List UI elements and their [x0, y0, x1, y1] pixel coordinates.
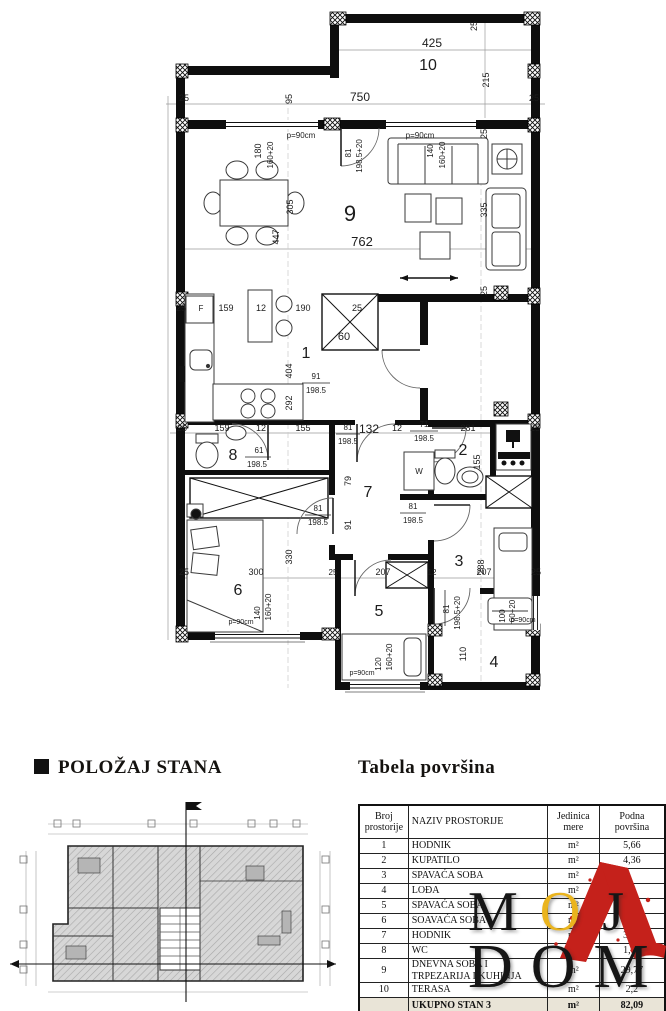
row-num: 6 [359, 914, 408, 929]
dim-label: 198.5 [247, 460, 268, 469]
room-number-1: 1 [302, 345, 311, 362]
header-jedinica: Jedinica mere [547, 805, 599, 839]
dim-label: 12 [428, 568, 437, 577]
dim-label: 25 [179, 93, 189, 103]
dim-label: 750 [350, 90, 370, 104]
total-label: UKUPNO STAN 3 [408, 998, 547, 1011]
dim-label: 404 [284, 363, 294, 378]
total-num [359, 998, 408, 1011]
table-row: 5SPAVAĆA SOBAm²6,01 [359, 899, 665, 914]
dim-label: 12 [392, 423, 402, 433]
row-name: HODNIK [408, 839, 547, 854]
dim-label: p=90cm [228, 619, 253, 626]
dim-label: 160+20 [266, 141, 275, 168]
position-title: POLOŽAJ STANA [34, 757, 222, 779]
dim-label: p=90cm [406, 131, 435, 140]
room-number-7: 7 [364, 484, 373, 501]
dim-label: 25 [179, 567, 189, 577]
dim-label: 25 [479, 286, 489, 296]
table-row: 2KUPATILOm²4,36 [359, 854, 665, 869]
dim-label: 330 [284, 549, 294, 564]
row-name: SPAVAĆA SOBA [408, 869, 547, 884]
dim-label: 190 [295, 303, 310, 313]
row-name: KUPATILO [408, 854, 547, 869]
row-area: 9,89 [599, 914, 665, 929]
black-square-bullet [34, 759, 49, 774]
dim-label: 281 [460, 423, 475, 433]
row-unit: m² [547, 929, 599, 944]
room-number-5: 5 [375, 603, 384, 620]
dim-label: 762 [351, 234, 373, 249]
dim-label: 91 [343, 520, 353, 530]
dim-label: 155 [472, 454, 482, 469]
row-name: HODNIK [408, 929, 547, 944]
row-unit: m² [547, 884, 599, 899]
dim-label: 120 [374, 657, 383, 671]
table-header-row: Broj prostorije NAZIV PROSTORIJE Jedinic… [359, 805, 665, 839]
dim-label: 25 [469, 21, 479, 31]
table-row: 4LOĐAm²2, [359, 884, 665, 899]
dim-label: 198.5 [403, 516, 424, 525]
dim-label: 110 [458, 647, 468, 661]
row-name: LOĐA [408, 884, 547, 899]
table-row: 7HODNIKm²3,59 [359, 929, 665, 944]
row-area: 2, [599, 884, 665, 899]
row-area: 3,59 [599, 929, 665, 944]
room-number-2: 2 [459, 442, 468, 459]
dim-label: 12 [256, 423, 266, 433]
dim-label: 81 [409, 502, 418, 511]
dim-label: 292 [284, 395, 294, 410]
dim-label: 447 [271, 229, 281, 244]
dim-label: 198.5+20 [355, 139, 364, 173]
table-row: 1HODNIKm²5,66 [359, 839, 665, 854]
dim-label: 159 [218, 303, 233, 313]
row-num: 5 [359, 899, 408, 914]
row-unit: m² [547, 983, 599, 998]
header-broj: Broj prostorije [359, 805, 408, 839]
row-num: 7 [359, 929, 408, 944]
dim-label: 71 [420, 420, 429, 429]
dim-label: 180 [253, 143, 263, 158]
dim-label: 25 [479, 129, 489, 139]
dim-label: 155 [295, 423, 310, 433]
row-area: 2,2 [599, 983, 665, 998]
dim-label: 100 [498, 609, 507, 623]
dim-label: 95 [284, 94, 294, 104]
row-num: 3 [359, 869, 408, 884]
dim-label: 198.5 [414, 434, 435, 443]
washer-letter: W [415, 467, 423, 476]
row-num: 9 [359, 959, 408, 983]
dim-label: p=90cm [287, 131, 316, 140]
table-title: Tabela površina [358, 757, 495, 779]
row-unit: m² [547, 854, 599, 869]
total-value: 82,09 [599, 998, 665, 1011]
row-unit: m² [547, 869, 599, 884]
row-unit: m² [547, 944, 599, 959]
room-number-4: 4 [490, 654, 499, 671]
row-area [599, 869, 665, 884]
dim-label: 25 [531, 567, 541, 577]
dim-label: 215 [481, 72, 491, 87]
table-total-row: UKUPNO STAN 3 m² 82,09 [359, 998, 665, 1011]
row-unit: m² [547, 839, 599, 854]
dim-label: 140 [253, 606, 262, 620]
dim-label: 198.5 [306, 386, 327, 395]
row-name: SOAVAĆA SOBA [408, 914, 547, 929]
total-unit: m² [547, 998, 599, 1011]
dim-label: 91 [312, 372, 321, 381]
dim-label: 25 [177, 423, 187, 433]
row-area: 4,36 [599, 854, 665, 869]
dim-label: 25 [529, 93, 539, 103]
dim-label: 198.5+20 [453, 596, 462, 630]
dim-label: p=90cm [510, 617, 535, 624]
row-num: 2 [359, 854, 408, 869]
dim-label: 140 [426, 144, 435, 158]
dim-label: 160+20 [438, 141, 447, 168]
dim-label: 25 [176, 303, 186, 313]
dim-label: 198.5 [308, 518, 329, 527]
dim-label: 335 [479, 202, 489, 217]
dim-label: 159 [214, 423, 229, 433]
dim-label: 207 [375, 567, 390, 577]
fridge-letter: F [199, 304, 204, 313]
row-area: 29,77 [599, 959, 665, 983]
furniture-desk [496, 424, 531, 470]
row-num: 10 [359, 983, 408, 998]
room-number-9: 9 [344, 201, 356, 226]
row-unit: m² [547, 914, 599, 929]
row-unit: m² [547, 899, 599, 914]
dim-label: 132 [359, 422, 379, 436]
row-area: 1,74 [599, 944, 665, 959]
table-row: 10TERASAm²2,2 [359, 983, 665, 998]
dim-label: 79 [343, 476, 353, 486]
area-table: Broj prostorije NAZIV PROSTORIJE Jedinic… [358, 804, 666, 1011]
room-number-6: 6 [234, 582, 243, 599]
dim-label: 305 [285, 199, 295, 214]
row-area: 5,66 [599, 839, 665, 854]
dim-label: 81 [344, 148, 353, 157]
room-number-10: 10 [419, 57, 437, 74]
row-name: SPAVAĆA SOBA [408, 899, 547, 914]
dim-label: 60 [338, 331, 350, 343]
dim-label: 160+20 [385, 643, 394, 670]
table-row: 6SOAVAĆA SOBAm²9,89 [359, 914, 665, 929]
header-naziv: NAZIV PROSTORIJE [408, 805, 547, 839]
dim-label: 12 [256, 303, 266, 313]
row-num: 8 [359, 944, 408, 959]
room-number-8: 8 [229, 447, 238, 464]
header-povrsina: Podna površina [599, 805, 665, 839]
row-unit: m² [547, 959, 599, 983]
dim-label: 81 [442, 604, 451, 613]
row-num: 4 [359, 884, 408, 899]
row-num: 1 [359, 839, 408, 854]
site-plan-svg [8, 796, 338, 1008]
dim-label: 300 [248, 567, 263, 577]
dim-label: 25 [352, 303, 362, 313]
dim-label: 425 [422, 36, 442, 50]
dim-label: 25 [530, 423, 540, 433]
table-row: 9DNEVNA SOBA I TRPEZARIJA I KUHINJAm²29,… [359, 959, 665, 983]
table-row: 3SPAVAĆA SOBAm² [359, 869, 665, 884]
floor-plan-svg: 425 10 215 25 25 95 750 25 180 160+20 p=… [0, 0, 666, 745]
table-row: 8WCm²1,74 [359, 944, 665, 959]
row-name: DNEVNA SOBA I TRPEZARIJA I KUHINJA [408, 959, 547, 983]
dim-label: p=90cm [349, 670, 374, 677]
row-name: TERASA [408, 983, 547, 998]
dim-label: 288 [476, 559, 486, 574]
row-area: 6,01 [599, 899, 665, 914]
dim-label: 81 [314, 504, 323, 513]
plan-sheet: 425 10 215 25 25 95 750 25 180 160+20 p=… [0, 0, 666, 1011]
dim-label: 198.5 [338, 437, 359, 446]
dim-label: 160+20 [264, 593, 273, 620]
dim-label: 25 [329, 568, 338, 577]
row-name: WC [408, 944, 547, 959]
room-number-3: 3 [455, 553, 464, 570]
dim-label: 81 [344, 423, 353, 432]
dim-label: 61 [255, 446, 264, 455]
